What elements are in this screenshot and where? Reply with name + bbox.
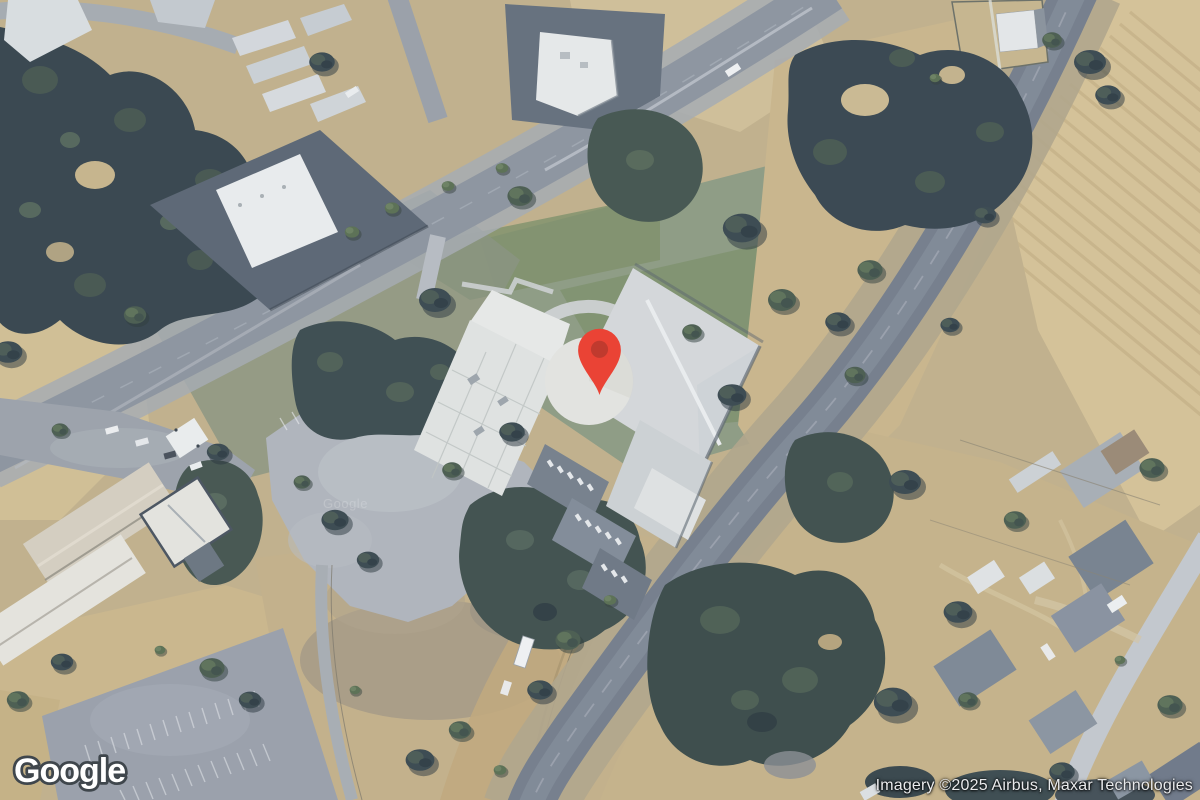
marker-dot [591,341,608,358]
map-viewport[interactable]: Google Google Imagery ©2025 Airbus, Maxa… [0,0,1200,800]
google-logo-text: Google [14,752,125,790]
imagery-attribution: Imagery ©2025 Airbus, Maxar Technologies [876,777,1193,795]
google-logo[interactable]: Google [8,746,158,794]
satellite-imagery: Google [0,0,1200,800]
haze-overlay [0,0,1200,800]
marker-body [578,329,621,395]
place-marker-icon[interactable] [575,326,624,396]
